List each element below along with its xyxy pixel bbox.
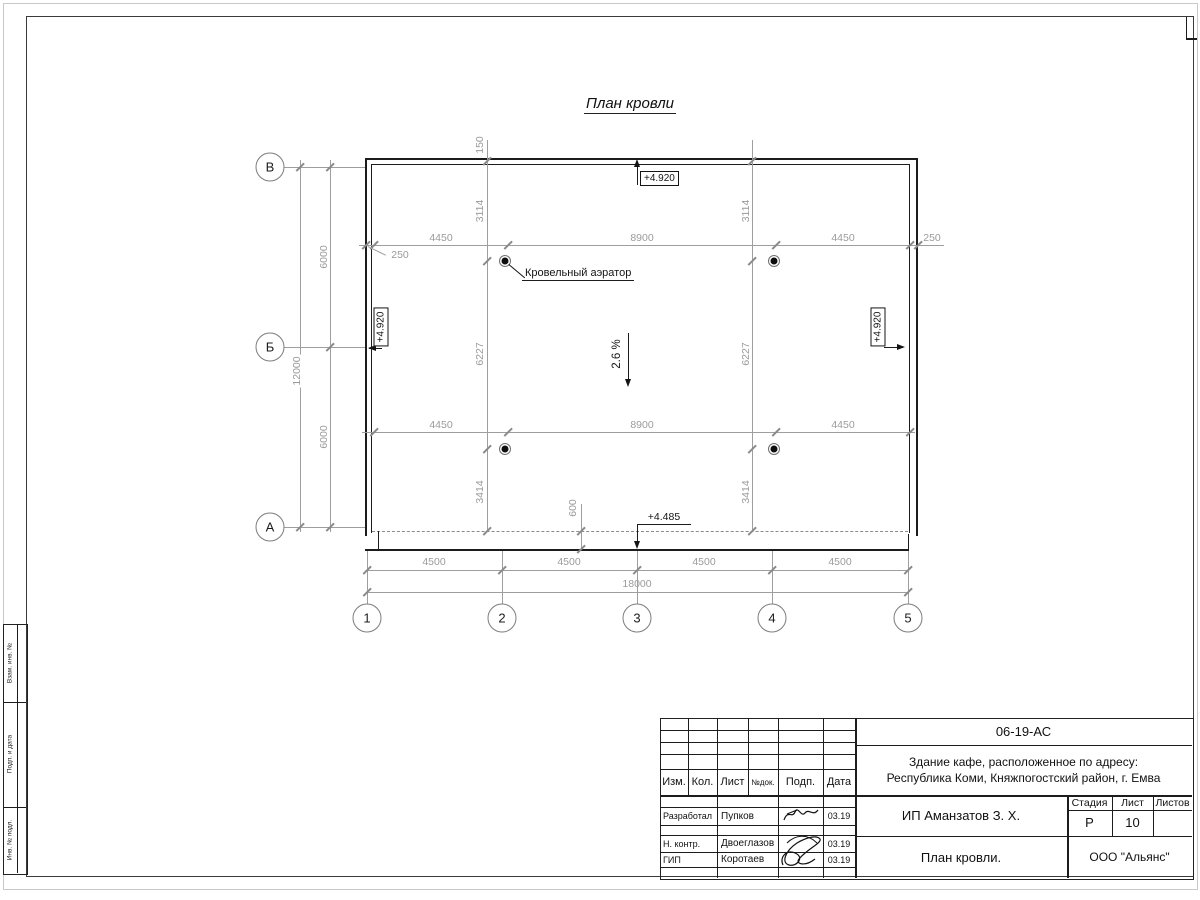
roof-aerator-dot <box>502 446 509 453</box>
dim-label: 6000 <box>318 243 330 270</box>
roof-outline-inner <box>371 164 910 533</box>
construction-line <box>752 140 753 532</box>
tb-sheet-value: 10 <box>1112 810 1153 835</box>
roof-edge-dashed <box>372 531 908 532</box>
dim-label: 4450 <box>829 232 856 244</box>
axis-bubble-b: Б <box>256 333 285 362</box>
elevation-mark-eave: +4.485 <box>648 511 680 523</box>
tb-line <box>660 867 855 868</box>
margin-label-podp: Подп. и дата <box>7 735 14 773</box>
tb-line <box>660 795 855 797</box>
dim-label: 4500 <box>826 556 853 568</box>
dim-label: 4500 <box>555 556 582 568</box>
dim-label: 3114 <box>740 198 752 225</box>
tb-sheets-header: Листов <box>1153 795 1192 810</box>
eave-connector <box>908 534 909 549</box>
aerator-label: Кровельный аэратор <box>525 267 631 279</box>
elev-underline <box>637 524 691 525</box>
tb-role: ГИП <box>663 852 716 867</box>
dim-label: 4500 <box>420 556 447 568</box>
elevation-mark-left: +4.920 <box>374 308 389 347</box>
roof-aerator-dot <box>502 258 509 265</box>
drawing-sheet: План кровли <box>0 0 1200 900</box>
axis-line <box>367 551 368 604</box>
dimension-line <box>300 160 301 532</box>
tb-name: Пупков <box>721 807 777 825</box>
corner-box-line <box>1186 38 1197 40</box>
dim-label: 6227 <box>740 340 752 367</box>
margin-line <box>17 624 18 873</box>
tb-company: ООО "Альянс" <box>1067 836 1192 878</box>
tb-line <box>660 742 855 743</box>
corner-box-line <box>1186 17 1187 38</box>
construction-line <box>487 140 488 532</box>
dim-label: 3114 <box>474 198 486 225</box>
tb-line <box>660 754 855 755</box>
elev-leader <box>637 166 638 185</box>
eave-connector <box>378 531 379 549</box>
dim-label: 18000 <box>620 578 653 590</box>
axis-line <box>502 551 503 604</box>
tb-sheet-header: Лист <box>1112 795 1153 810</box>
tb-sheets-value <box>1153 810 1192 835</box>
dim-label: 8900 <box>628 232 655 244</box>
tb-doc-number: 06-19-АС <box>855 718 1192 745</box>
dim-label: 6000 <box>318 423 330 450</box>
tb-line <box>660 825 855 826</box>
roof-aerator-dot <box>771 258 778 265</box>
axis-line <box>284 347 365 348</box>
slope-arrow-line <box>628 333 629 379</box>
dim-label: 4450 <box>829 419 856 431</box>
slope-label: 2.6 % <box>611 337 623 370</box>
tb-name: Коротаев <box>721 852 777 867</box>
dimension-line <box>362 432 915 433</box>
tb-date: 03.19 <box>823 807 855 825</box>
dim-label: 150 <box>474 134 486 156</box>
page-title: План кровли <box>584 95 676 114</box>
elev-arrow-down <box>634 541 640 549</box>
tb-col-podp: Подп. <box>778 769 823 795</box>
leader-underline <box>522 280 634 281</box>
dim-label: 6227 <box>474 340 486 367</box>
dim-label: 8900 <box>628 419 655 431</box>
dim-label: 3414 <box>474 478 486 505</box>
axis-line <box>772 551 773 604</box>
elev-arrow-up <box>634 159 640 167</box>
signature <box>777 829 823 871</box>
dim-label: 3414 <box>740 478 752 505</box>
dim-label: 4450 <box>427 232 454 244</box>
tb-object-line1: Здание кафе, расположенное по адресу: <box>909 754 1138 770</box>
tb-client: ИП Аманзатов З. Х. <box>855 795 1067 836</box>
tb-col-ndok: №док. <box>748 769 778 795</box>
elevation-mark-right: +4.920 <box>871 308 886 347</box>
tb-col-list: Лист <box>717 769 748 795</box>
tb-object: Здание кафе, расположенное по адресу: Ре… <box>855 745 1192 795</box>
dimension-line <box>367 592 908 593</box>
axis-bubble-1: 1 <box>353 604 382 633</box>
slope-arrow-head <box>625 379 631 387</box>
margin-label-vzam: Взам. инв. № <box>7 643 14 683</box>
tb-object-line2: Республика Коми, Княжпогостский район, г… <box>887 770 1161 786</box>
tb-role: Разработал <box>663 807 716 825</box>
dim-label: 250 <box>921 232 943 244</box>
margin-label-inv: Инв. № подл. <box>7 820 14 861</box>
tb-col-data: Дата <box>823 769 855 795</box>
axis-bubble-5: 5 <box>894 604 923 633</box>
tb-name: Двоеглазов <box>721 835 777 852</box>
elev-arrow-right <box>897 344 905 350</box>
dim-label: 4500 <box>690 556 717 568</box>
construction-line <box>581 504 582 549</box>
tb-drawing-title: План кровли. <box>855 836 1067 878</box>
tb-stage-value: Р <box>1067 810 1112 835</box>
tb-date: 03.19 <box>823 852 855 867</box>
tb-col-kol: Кол. <box>688 769 717 795</box>
tb-line <box>660 730 855 731</box>
dim-label: 4450 <box>427 419 454 431</box>
margin-line <box>3 807 26 808</box>
tb-date: 03.19 <box>823 835 855 852</box>
dim-label: 600 <box>567 497 579 519</box>
margin-line <box>3 702 26 703</box>
axis-line <box>908 551 909 604</box>
dim-label: 12000 <box>291 354 303 387</box>
tb-role: Н. контр. <box>663 835 716 852</box>
dim-label: 250 <box>389 249 411 261</box>
tb-col-izm: Изм. <box>660 769 688 795</box>
signature <box>781 805 821 825</box>
roof-aerator-dot <box>771 446 778 453</box>
axis-bubble-a: А <box>256 513 285 542</box>
axis-bubble-2: 2 <box>488 604 517 633</box>
dimension-line <box>359 245 944 246</box>
axis-bubble-v: В <box>256 153 285 182</box>
tb-stage-header: Стадия <box>1067 795 1112 810</box>
axis-bubble-4: 4 <box>758 604 787 633</box>
axis-bubble-3: 3 <box>623 604 652 633</box>
elevation-mark-top: +4.920 <box>640 171 679 186</box>
